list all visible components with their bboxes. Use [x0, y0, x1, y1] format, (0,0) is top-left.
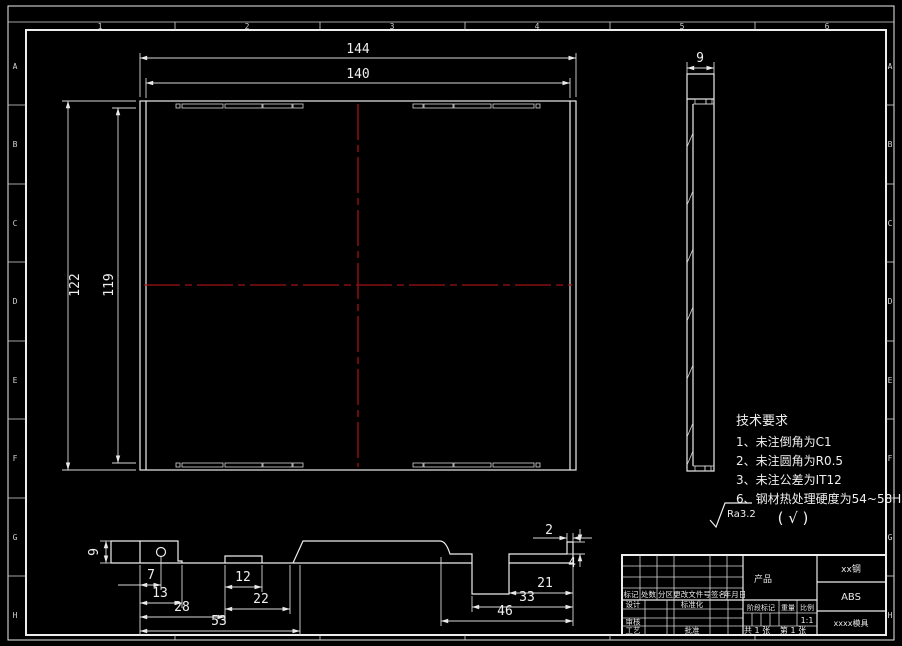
dim-4: 4 — [568, 556, 576, 571]
scale-label: 比例 — [800, 603, 814, 612]
zone-number: 6 — [825, 22, 830, 31]
col-zone: 分区 — [658, 590, 673, 599]
other-roughness-symbol: ( √ ) — [778, 509, 809, 527]
zone-number: 5 — [680, 22, 685, 31]
svg-text:D: D — [13, 297, 18, 306]
dim-28: 28 — [174, 600, 190, 615]
section-hatching — [687, 133, 693, 465]
svg-text:A: A — [13, 62, 18, 71]
tech-requirement-item: 3、未注公差为IT12 — [736, 472, 842, 487]
svg-text:C: C — [888, 219, 893, 228]
row-design: 设计 — [626, 599, 641, 609]
zone-number: 2 — [245, 22, 250, 31]
tech-requirements-title: 技术要求 — [736, 414, 788, 429]
col-change-file: 更改文件号 — [673, 589, 711, 599]
dim-21: 21 — [537, 576, 553, 591]
hole-circle — [157, 548, 166, 557]
tech-requirement-item: 1、未注倒角为C1 — [736, 434, 832, 449]
svg-text:F: F — [13, 454, 18, 463]
dim-thickness: 9 — [696, 51, 704, 66]
dim-53: 53 — [211, 614, 227, 629]
svg-text:E: E — [13, 376, 18, 385]
roughness-value: Ra3.2 — [727, 509, 756, 520]
drawing-name: xxxx模具 — [834, 618, 869, 628]
zone-letters: AB CD EF GH AB CD EF GH — [13, 62, 893, 620]
section-view: 9 7 13 28 53 12 22 2 4 21 33 — [87, 523, 592, 636]
main-view: 144 140 122 119 — [62, 42, 576, 470]
svg-text:C: C — [13, 219, 18, 228]
zone-number: 4 — [535, 22, 540, 31]
tech-requirement-item: 6、钢材热处理硬度为54~58HRC — [736, 491, 902, 506]
cad-drawing-sheet: 1 2 3 4 5 6 AB CD EF GH AB — [0, 0, 902, 646]
row-standardize: 标准化 — [681, 599, 704, 609]
svg-text:F: F — [888, 454, 893, 463]
row-process: 工艺 — [626, 626, 641, 635]
zone-number: 3 — [390, 22, 395, 31]
svg-text:A: A — [888, 62, 893, 71]
dim-height-outer: 122 — [68, 273, 83, 296]
zone-ticks-top — [175, 22, 755, 30]
svg-text:H: H — [888, 611, 893, 620]
sheet-page: 第 1 张 — [780, 625, 806, 635]
title-block: 标记 处数 分区 更改文件号 签名 年月日 设计 标准化 审核 工艺 批准 产品… — [622, 555, 886, 635]
zone-number: 1 — [98, 22, 103, 31]
product-label: 产品 — [754, 573, 772, 585]
svg-text:D: D — [888, 297, 893, 306]
part-material-value: ABS — [841, 592, 861, 603]
engineering-drawing: 1 2 3 4 5 6 AB CD EF GH AB — [0, 0, 902, 646]
side-view: 9 — [687, 51, 714, 471]
dim-13: 13 — [152, 586, 168, 601]
svg-text:G: G — [13, 533, 18, 542]
dim-12: 12 — [235, 570, 251, 585]
dim-22: 22 — [253, 592, 269, 607]
tech-requirement-item: 2、未注圆角为R0.5 — [736, 453, 843, 468]
svg-text:E: E — [888, 376, 893, 385]
scale-value: 1:1 — [801, 616, 814, 625]
surface-finish-symbols: Ra3.2 ( √ ) — [710, 503, 808, 527]
col-mark: 标记 — [624, 589, 639, 599]
sheet-total: 共 1 张 — [744, 626, 770, 635]
row-approve: 批准 — [685, 625, 700, 635]
weight-label: 重量 — [781, 604, 795, 612]
dim-width-inner: 140 — [346, 67, 369, 82]
svg-text:G: G — [888, 533, 893, 542]
dim-2: 2 — [545, 523, 553, 538]
dim-width-outer: 144 — [346, 42, 370, 57]
tech-requirements: 技术要求 1、未注倒角为C1 2、未注圆角为R0.5 3、未注公差为IT12 6… — [736, 414, 902, 506]
svg-text:B: B — [888, 140, 893, 149]
svg-text:B: B — [13, 140, 18, 149]
dim-46: 46 — [497, 604, 513, 619]
col-count: 处数 — [641, 589, 656, 599]
svg-text:H: H — [13, 611, 18, 620]
dim-height-inner: 119 — [102, 273, 117, 296]
dim-step-height: 9 — [87, 548, 102, 556]
dim-33: 33 — [519, 590, 535, 605]
material-value: xx钢 — [841, 563, 861, 575]
dim-7: 7 — [147, 568, 155, 583]
row-check: 审核 — [626, 617, 641, 627]
stage-mark-label: 阶段标记 — [747, 603, 775, 612]
